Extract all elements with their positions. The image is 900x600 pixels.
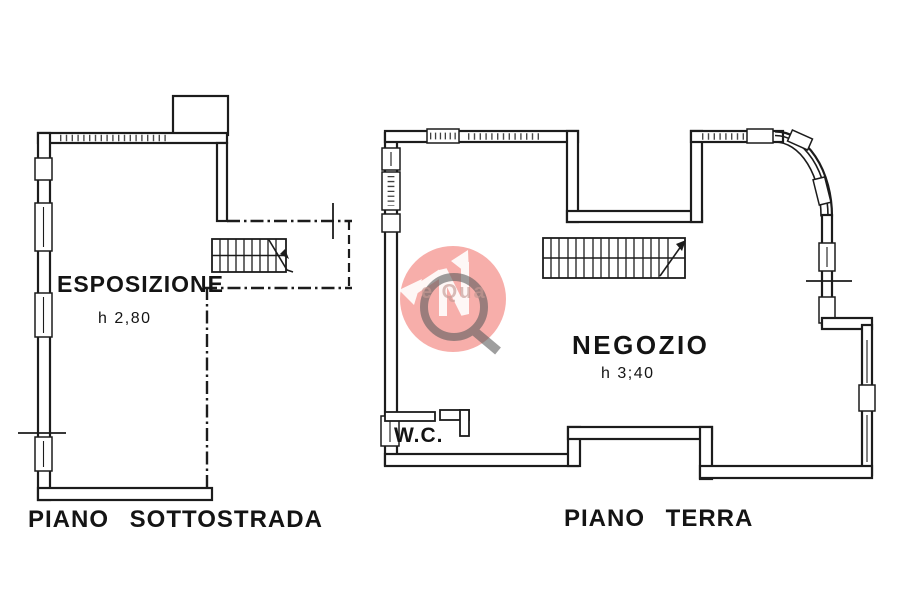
window-sill [747,129,773,143]
bottom-wall-middle [568,427,712,439]
floorplan-canvas: ESPOSIZIONE h 2,80 PIANO SOTTOSTRADA NEG… [0,0,900,600]
notch-right-wall [691,131,702,222]
room-height-negozio: h 3;40 [601,365,654,383]
room-label-negozio: NEGOZIO [572,330,709,361]
staircase [543,238,686,278]
bottom-wall-left [385,454,578,466]
window-sill [813,177,831,205]
room-label-esposizione: ESPOSIZIONE [57,271,224,298]
curved-corner-wall [775,130,832,216]
entry-box-wall [173,96,228,135]
caption-piano-sottostrada: PIANO SOTTOSTRADA [28,506,323,534]
caption-piano-terra: PIANO TERRA [564,505,753,533]
window [35,158,52,180]
bottom-wall [38,488,212,500]
notch-left-wall [567,131,578,222]
bottom-wall-right [700,466,872,478]
top-wall [385,131,578,142]
room-label-wc: W.C. [394,424,444,448]
right-upper-wall [217,143,227,221]
notch-bottom-wall [567,211,702,222]
room-height-esposizione: h 2,80 [98,310,151,328]
plan-sottostrada-linework [18,96,352,500]
window-sill [427,129,459,143]
staircase [212,239,293,272]
window [382,214,400,232]
window [859,385,875,411]
watermark-partial-text: e Qua [421,281,487,304]
